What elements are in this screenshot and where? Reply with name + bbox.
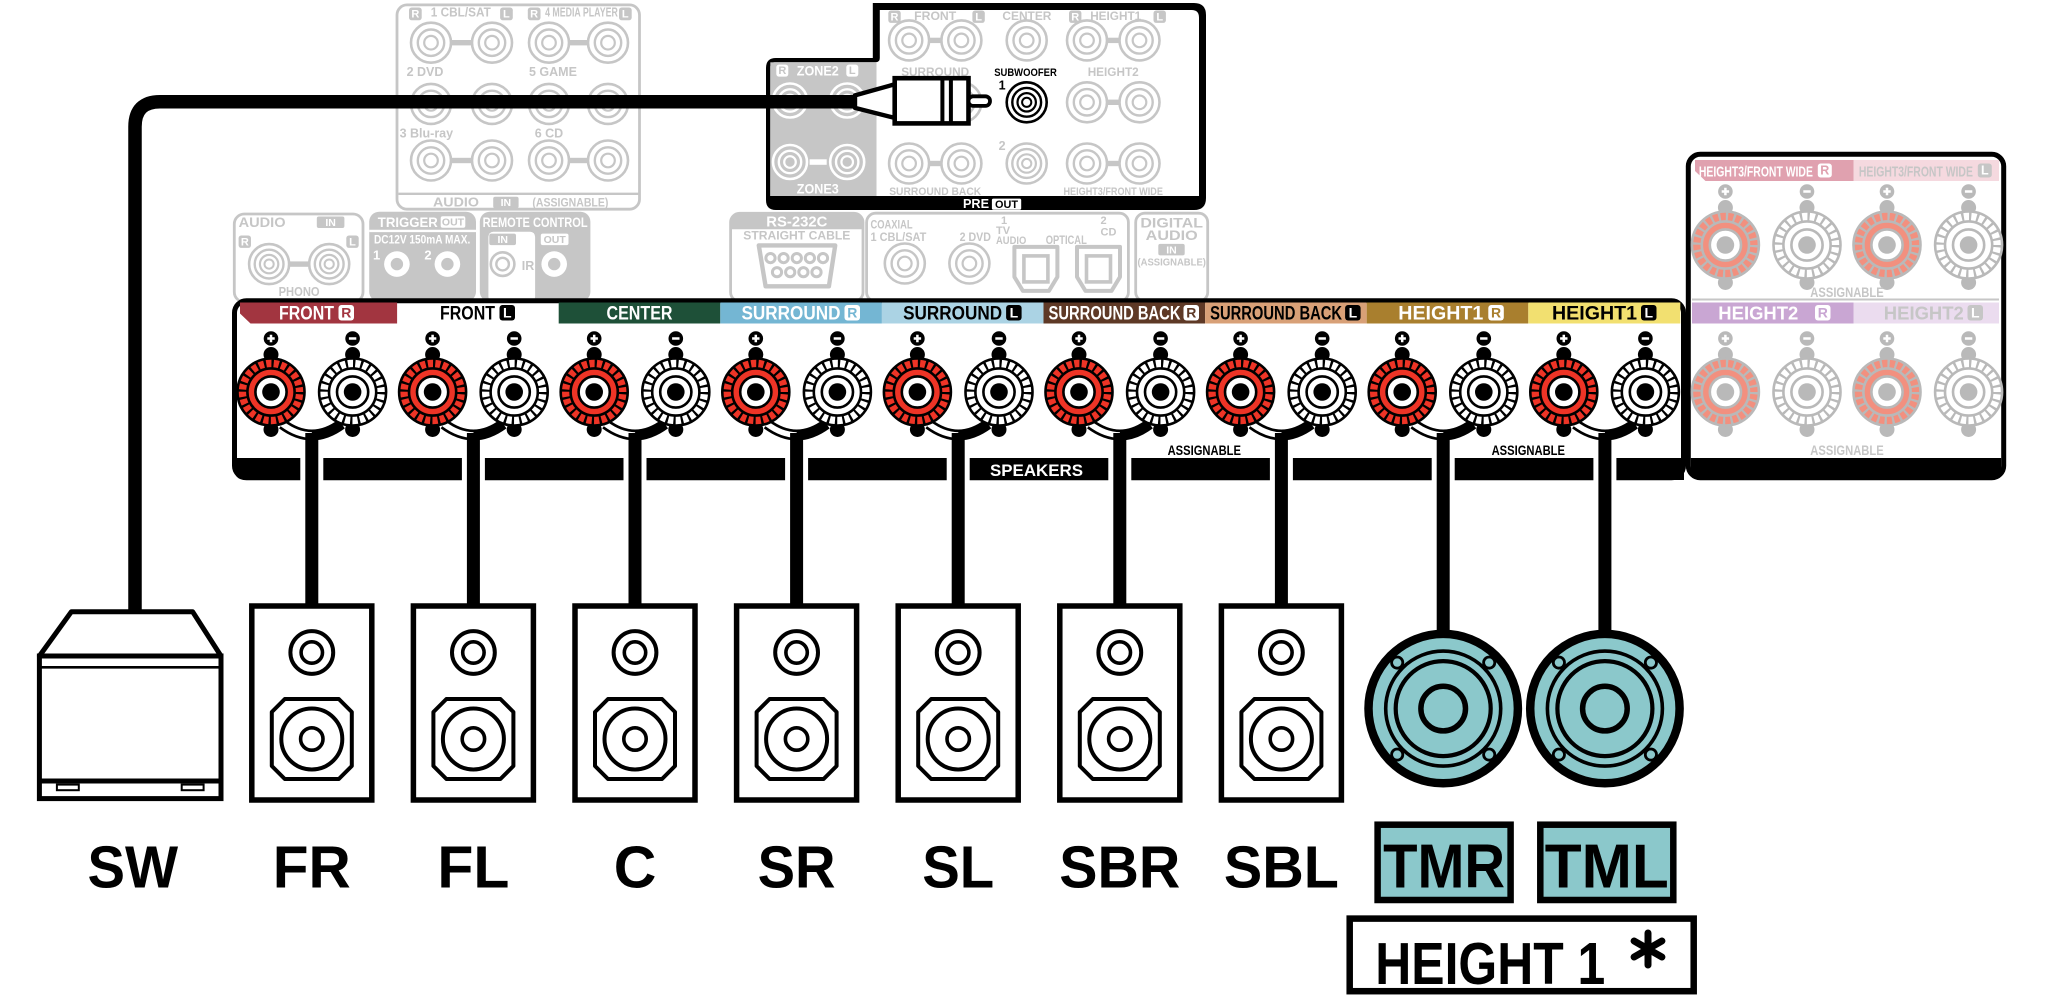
- svg-text:R: R: [1491, 305, 1501, 321]
- svg-text:L: L: [1971, 305, 1980, 321]
- svg-text:SUBWOOFER: SUBWOOFER: [994, 67, 1057, 79]
- svg-text:HEIGHT2: HEIGHT2: [1088, 65, 1139, 79]
- svg-text:1 CBL/SAT: 1 CBL/SAT: [431, 6, 491, 20]
- svg-text:2: 2: [424, 248, 431, 263]
- svg-text:R: R: [241, 236, 249, 248]
- svg-text:HEIGHT1: HEIGHT1: [1552, 304, 1637, 325]
- svg-text:IN: IN: [1166, 244, 1177, 256]
- svg-text:ASSIGNABLE: ASSIGNABLE: [1492, 442, 1565, 458]
- svg-text:SPEAKERS: SPEAKERS: [990, 462, 1083, 480]
- svg-text:CD: CD: [1101, 227, 1117, 239]
- svg-text:(ASSIGNABLE): (ASSIGNABLE): [532, 196, 608, 210]
- svg-text:SURROUND BACK: SURROUND BACK: [1049, 304, 1181, 325]
- svg-text:(ASSIGNABLE): (ASSIGNABLE): [1137, 256, 1206, 268]
- svg-text:L: L: [975, 11, 982, 23]
- svg-text:ZONE3: ZONE3: [797, 181, 839, 197]
- svg-text:R: R: [411, 8, 419, 20]
- svg-text:SBR: SBR: [1059, 834, 1180, 900]
- svg-text:L: L: [1349, 305, 1358, 321]
- svg-text:L: L: [503, 8, 510, 20]
- svg-text:REMOTE CONTROL: REMOTE CONTROL: [483, 214, 588, 230]
- svg-text:CENTER: CENTER: [607, 304, 673, 325]
- svg-text:L: L: [349, 236, 356, 248]
- svg-text:PHONO: PHONO: [279, 285, 320, 299]
- svg-text:1 CBL/SAT: 1 CBL/SAT: [871, 230, 927, 244]
- svg-text:3 Blu-ray: 3 Blu-ray: [400, 127, 454, 141]
- svg-text:R: R: [341, 305, 351, 321]
- svg-text:IR: IR: [522, 259, 535, 273]
- svg-text:HEIGHT 1: HEIGHT 1: [1375, 931, 1605, 996]
- svg-text:L: L: [622, 8, 629, 20]
- svg-text:TMR: TMR: [1383, 833, 1505, 902]
- svg-text:IN: IN: [501, 197, 512, 209]
- svg-text:DC12V 150mA MAX.: DC12V 150mA MAX.: [374, 233, 470, 247]
- svg-text:R: R: [1820, 164, 1829, 178]
- svg-text:FRONT: FRONT: [279, 304, 334, 325]
- svg-text:L: L: [1645, 305, 1654, 321]
- svg-text:L: L: [503, 305, 512, 321]
- svg-text:HEIGHT2: HEIGHT2: [1718, 304, 1798, 324]
- svg-text:HEIGHT2: HEIGHT2: [1884, 304, 1964, 324]
- svg-text:HEIGHT3/FRONT WIDE: HEIGHT3/FRONT WIDE: [1064, 186, 1163, 198]
- svg-text:2: 2: [1101, 215, 1107, 227]
- svg-text:L: L: [1156, 11, 1163, 23]
- svg-text:SW: SW: [88, 834, 179, 900]
- svg-text:PRE: PRE: [963, 196, 989, 211]
- svg-text:SR: SR: [758, 834, 836, 900]
- svg-text:TML: TML: [1545, 833, 1669, 902]
- svg-text:L: L: [849, 65, 856, 77]
- svg-text:IN: IN: [497, 234, 508, 246]
- svg-text:HEIGHT3/FRONT WIDE: HEIGHT3/FRONT WIDE: [1699, 164, 1813, 181]
- svg-text:1: 1: [373, 248, 380, 263]
- svg-text:ZONE2: ZONE2: [797, 63, 839, 79]
- svg-text:4 MEDIA PLAYER: 4 MEDIA PLAYER: [545, 6, 618, 20]
- svg-text:AUDIO: AUDIO: [433, 196, 479, 210]
- svg-text:2 DVD: 2 DVD: [960, 230, 992, 244]
- svg-text:C: C: [614, 834, 657, 900]
- svg-text:SURROUND: SURROUND: [742, 304, 841, 325]
- svg-text:IN: IN: [325, 217, 336, 229]
- svg-text:2: 2: [999, 139, 1006, 153]
- svg-text:ASSIGNABLE: ASSIGNABLE: [1810, 284, 1883, 300]
- svg-text:2 DVD: 2 DVD: [407, 65, 444, 79]
- svg-text:R: R: [530, 8, 538, 20]
- svg-text:TRIGGER: TRIGGER: [378, 214, 438, 230]
- svg-text:R: R: [778, 65, 786, 77]
- svg-text:SURROUND BACK: SURROUND BACK: [1210, 304, 1342, 325]
- svg-text:ASSIGNABLE: ASSIGNABLE: [1168, 442, 1241, 458]
- svg-text:FR: FR: [273, 834, 351, 900]
- svg-text:R: R: [1186, 305, 1196, 321]
- svg-text:STRAIGHT CABLE: STRAIGHT CABLE: [743, 229, 850, 243]
- svg-text:R: R: [891, 11, 899, 23]
- svg-text:1: 1: [999, 79, 1006, 93]
- svg-text:AUDIO: AUDIO: [239, 214, 286, 230]
- svg-text:R: R: [1818, 305, 1828, 321]
- svg-text:ASSIGNABLE: ASSIGNABLE: [1810, 442, 1883, 458]
- svg-text:AUDIO: AUDIO: [1146, 227, 1198, 243]
- svg-text:FRONT: FRONT: [914, 9, 957, 23]
- svg-text:OUT: OUT: [995, 199, 1018, 211]
- svg-text:R: R: [847, 305, 857, 321]
- svg-text:5 GAME: 5 GAME: [529, 65, 577, 79]
- svg-text:SBL: SBL: [1224, 834, 1339, 900]
- svg-text:L: L: [1010, 305, 1019, 321]
- svg-text:OUT: OUT: [544, 234, 567, 246]
- svg-text:FL: FL: [437, 834, 509, 900]
- svg-text:FRONT: FRONT: [440, 304, 495, 325]
- svg-text:L: L: [1981, 164, 1989, 178]
- svg-text:6 CD: 6 CD: [535, 127, 563, 141]
- svg-text:OUT: OUT: [442, 217, 465, 229]
- svg-text:HEIGHT1: HEIGHT1: [1398, 304, 1483, 325]
- svg-text:SURROUND: SURROUND: [903, 304, 1002, 325]
- svg-text:HEIGHT3/FRONT WIDE: HEIGHT3/FRONT WIDE: [1859, 164, 1973, 181]
- svg-text:SL: SL: [922, 834, 994, 900]
